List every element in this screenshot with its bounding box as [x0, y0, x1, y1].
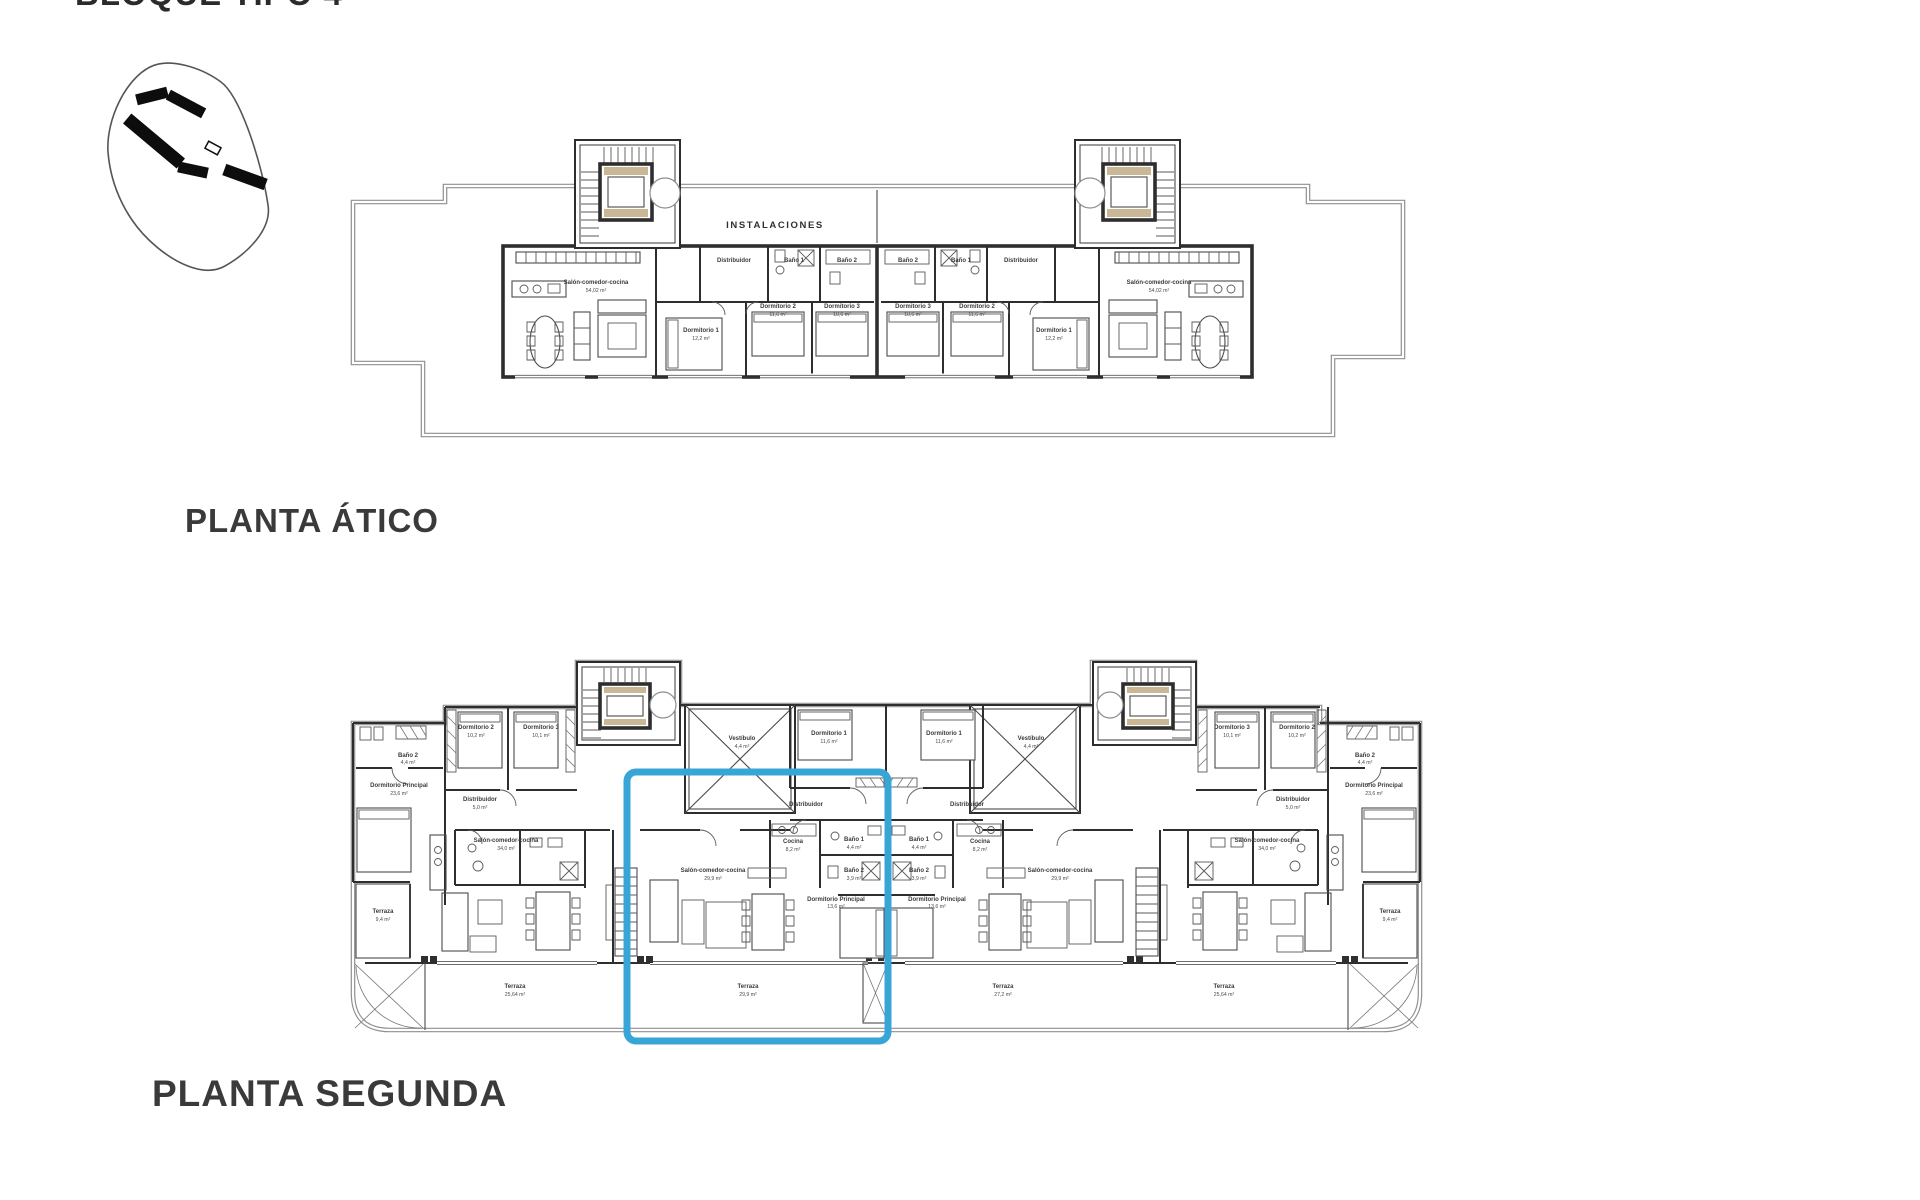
room-label: Salón-comedor-cocina — [1028, 868, 1093, 874]
room-area: 54,02 m² — [586, 288, 607, 294]
room-area: 29,9 m² — [704, 876, 722, 882]
room-label: Dormitorio 1 — [683, 328, 719, 334]
room-label: Baño 2 — [844, 868, 865, 874]
room-label: Baño 1 — [844, 837, 865, 843]
room-label: Vestíbulo — [1018, 736, 1045, 742]
room-label: Distribuidor — [717, 258, 752, 264]
planta-atico-drawing: INSTALACIONES — [353, 140, 1403, 435]
room-label: Cocina — [970, 839, 991, 845]
room-label: Dormitorio 3 — [1214, 725, 1250, 731]
floorplan-drawing: BLOQUE TIPO 4 INSTALACIONES — [0, 0, 1920, 1200]
room-label: Terraza — [505, 984, 527, 990]
room-label: Dormitorio 3 — [895, 304, 931, 310]
room-label: Terraza — [1214, 984, 1236, 990]
room-label: Terraza — [373, 909, 395, 915]
room-label: Dormitorio 1 — [811, 731, 847, 737]
room-area: 11,6 m² — [935, 739, 952, 745]
room-area: 4,4 m² — [847, 845, 862, 851]
room-label: Terraza — [1380, 909, 1402, 915]
room-area: 3,9 m² — [847, 876, 862, 882]
planta-atico-caption: PLANTA ÁTICO — [185, 502, 439, 539]
room-area: 25,64 m² — [1214, 992, 1235, 998]
room-area: 13,6 m² — [928, 904, 946, 910]
room-label: Baño 2 — [398, 753, 419, 759]
room-label: Dormitorio 2 — [760, 304, 796, 310]
room-area: 10,6 m² — [833, 312, 851, 318]
room-label: Baño 2 — [837, 258, 858, 264]
room-area: 23,6 m² — [390, 791, 408, 797]
room-label: Salón-comedor-cocina — [1235, 838, 1300, 844]
room-area: 34,0 m² — [1258, 846, 1276, 852]
room-area: 8,2 m² — [973, 847, 988, 853]
room-area: 10,6 m² — [904, 312, 922, 318]
room-label: Dormitorio 3 — [824, 304, 860, 310]
room-area: 4,4 m² — [912, 845, 927, 851]
room-area: 9,4 m² — [1383, 917, 1398, 923]
room-area: 10,2 m² — [467, 733, 485, 739]
site-location-map — [108, 63, 269, 270]
room-area: 25,64 m² — [505, 992, 526, 998]
room-label: Dormitorio Principal — [807, 897, 865, 903]
room-area: 4,4 m² — [1024, 744, 1039, 750]
planta-segunda-caption: PLANTA SEGUNDA — [152, 1073, 507, 1114]
room-area: 10,1 m² — [1223, 733, 1241, 739]
room-label: Dormitorio 2 — [959, 304, 995, 310]
room-label: Dormitorio 1 — [926, 731, 962, 737]
room-label: Dormitorio 3 — [523, 725, 559, 731]
room-label: Baño 1 — [909, 837, 930, 843]
stair-elevator-tower — [575, 140, 680, 248]
room-area: 13,6 m² — [827, 904, 845, 910]
room-label: Terraza — [738, 984, 760, 990]
room-area: 12,2 m² — [692, 336, 710, 342]
room-area: 5,0 m² — [1286, 805, 1301, 811]
lightwell-void — [685, 705, 1080, 813]
elevator-accent — [604, 167, 648, 175]
room-label: Baño 2 — [1355, 753, 1376, 759]
room-label: Dormitorio 2 — [458, 725, 494, 731]
room-area: 4,4 m² — [401, 760, 416, 766]
room-label: Dormitorio 1 — [1036, 328, 1072, 334]
room-label: Distribuidor — [1276, 797, 1311, 803]
room-label: Distribuidor — [1004, 258, 1039, 264]
room-area: 29,9 m² — [739, 992, 757, 998]
room-label: Salón-comedor-cocina — [1127, 280, 1192, 286]
room-label: Cocina — [783, 839, 804, 845]
room-label: Salón-comedor-cocina — [564, 280, 629, 286]
room-area: 27,2 m² — [994, 992, 1012, 998]
room-area: 10,2 m² — [1288, 733, 1306, 739]
room-label: Distribuidor — [950, 802, 985, 808]
room-label: Terraza — [993, 984, 1015, 990]
room-label: Dormitorio Principal — [908, 897, 966, 903]
room-label: Dormitorio 2 — [1279, 725, 1315, 731]
corner-hatch — [355, 963, 425, 1030]
room-label: Salón-comedor-cocina — [474, 838, 539, 844]
room-area: 11,6 m² — [820, 739, 837, 745]
room-label: Dormitorio Principal — [370, 783, 428, 789]
room-label: Vestíbulo — [729, 736, 756, 742]
room-area: 23,6 m² — [1365, 791, 1383, 797]
room-area: 5,0 m² — [473, 805, 488, 811]
room-area: 11,6 m² — [769, 312, 786, 318]
room-label: Baño 1 — [951, 258, 972, 264]
room-label: Baño 2 — [909, 868, 930, 874]
room-label: Salón-comedor-cocina — [681, 868, 746, 874]
room-area: 4,4 m² — [735, 744, 750, 750]
room-area: 3,9 m² — [912, 876, 927, 882]
sheet-title: BLOQUE TIPO 4 — [75, 0, 343, 12]
floorplan-sheet: BLOQUE TIPO 4 INSTALACIONES — [0, 0, 1920, 1200]
room-label: Dormitorio Principal — [1345, 783, 1403, 789]
instalaciones-label: INSTALACIONES — [726, 220, 824, 231]
stair-elevator-tower — [577, 662, 680, 745]
room-area: 8,2 m² — [786, 847, 801, 853]
room-area: 34,0 m² — [497, 846, 515, 852]
room-label: Baño 1 — [784, 258, 805, 264]
spiral-stair-circle — [650, 178, 680, 208]
room-area: 29,9 m² — [1051, 876, 1069, 882]
room-area: 54,02 m² — [1149, 288, 1170, 294]
room-area: 10,1 m² — [532, 733, 550, 739]
room-area: 9,4 m² — [376, 917, 391, 923]
room-area: 12,2 m² — [1045, 336, 1063, 342]
atico-windows — [515, 374, 850, 381]
room-label: Baño 2 — [898, 258, 919, 264]
room-label: Distribuidor — [789, 802, 824, 808]
room-area: 4,4 m² — [1358, 760, 1373, 766]
room-area: 11,6 m² — [968, 312, 985, 318]
room-label: Distribuidor — [463, 797, 498, 803]
